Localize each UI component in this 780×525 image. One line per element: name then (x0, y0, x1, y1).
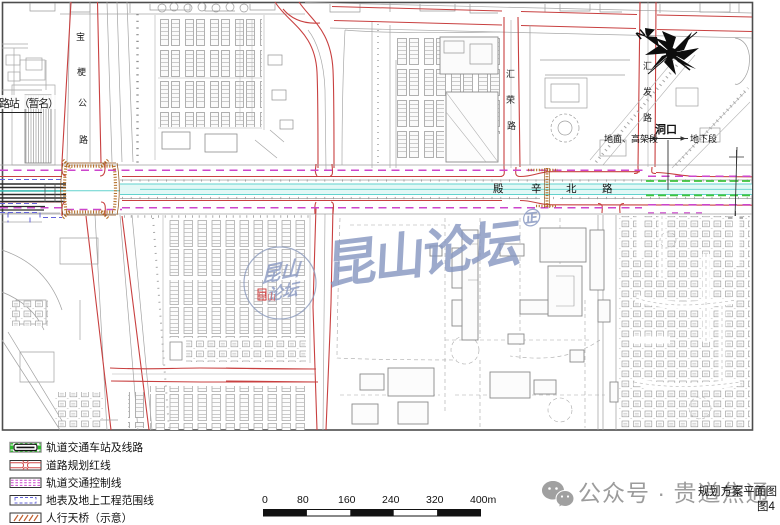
svg-text:道路规划红线: 道路规划红线 (46, 458, 111, 472)
svg-text:160: 160 (338, 494, 356, 506)
svg-text:地下段: 地下段 (690, 133, 717, 144)
svg-text:图4: 图4 (757, 500, 775, 513)
svg-text:路: 路 (79, 134, 88, 145)
svg-text:路站（暂名）: 路站（暂名） (0, 96, 58, 110)
svg-text:洞口: 洞口 (655, 122, 677, 136)
svg-text:路: 路 (643, 112, 652, 123)
svg-text:240: 240 (382, 494, 400, 506)
svg-text:北: 北 (566, 183, 577, 195)
svg-text:发: 发 (643, 86, 652, 97)
svg-text:地面、高架段: 地面、高架段 (604, 133, 658, 144)
svg-text:昆山: 昆山 (258, 292, 276, 302)
svg-text:辛: 辛 (531, 182, 542, 195)
svg-text:地表及地上工程范围线: 地表及地上工程范围线 (46, 493, 154, 507)
svg-text:汇: 汇 (506, 69, 515, 79)
svg-text:轨道交通控制线: 轨道交通控制线 (46, 476, 122, 490)
svg-text:梗: 梗 (77, 66, 86, 77)
svg-text:公: 公 (78, 98, 87, 108)
svg-text:㊣: ㊣ (522, 206, 541, 229)
svg-text:400m: 400m (470, 494, 497, 506)
svg-text:殿: 殿 (493, 183, 504, 195)
svg-text:规划方案平面图: 规划方案平面图 (698, 484, 777, 498)
svg-text:0: 0 (262, 494, 268, 506)
svg-text:荣: 荣 (506, 94, 515, 105)
svg-text:80: 80 (297, 494, 309, 506)
svg-text:宝: 宝 (76, 31, 85, 42)
svg-text:路: 路 (602, 182, 613, 195)
svg-text:人行天桥（示意）: 人行天桥（示意） (46, 511, 132, 525)
svg-text:路: 路 (507, 120, 516, 131)
svg-text:汇: 汇 (643, 61, 652, 71)
svg-text:320: 320 (426, 494, 444, 506)
svg-text:轨道交通车站及线路: 轨道交通车站及线路 (46, 440, 143, 454)
